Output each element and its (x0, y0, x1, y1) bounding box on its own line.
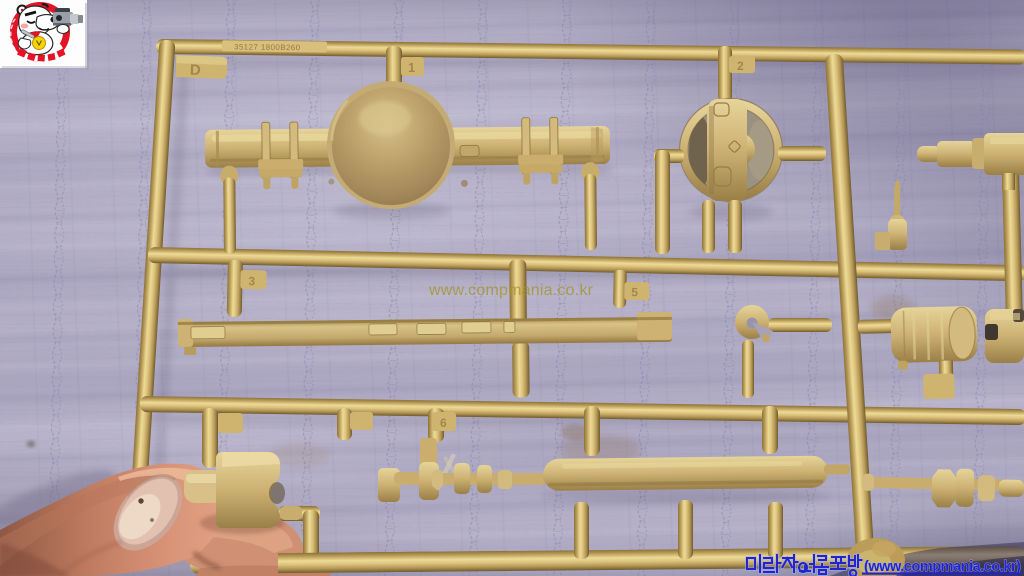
svg-text:www.compmania.co.kr: www.compmania.co.kr (428, 282, 594, 299)
svg-text:3: 3 (248, 274, 255, 288)
svg-text:D: D (190, 62, 202, 79)
svg-text:35127 1800B260: 35127 1800B260 (234, 42, 301, 52)
svg-text:1: 1 (408, 60, 415, 75)
svg-text:5: 5 (631, 285, 638, 299)
svg-text:6: 6 (440, 416, 447, 430)
svg-text:2: 2 (737, 59, 744, 73)
